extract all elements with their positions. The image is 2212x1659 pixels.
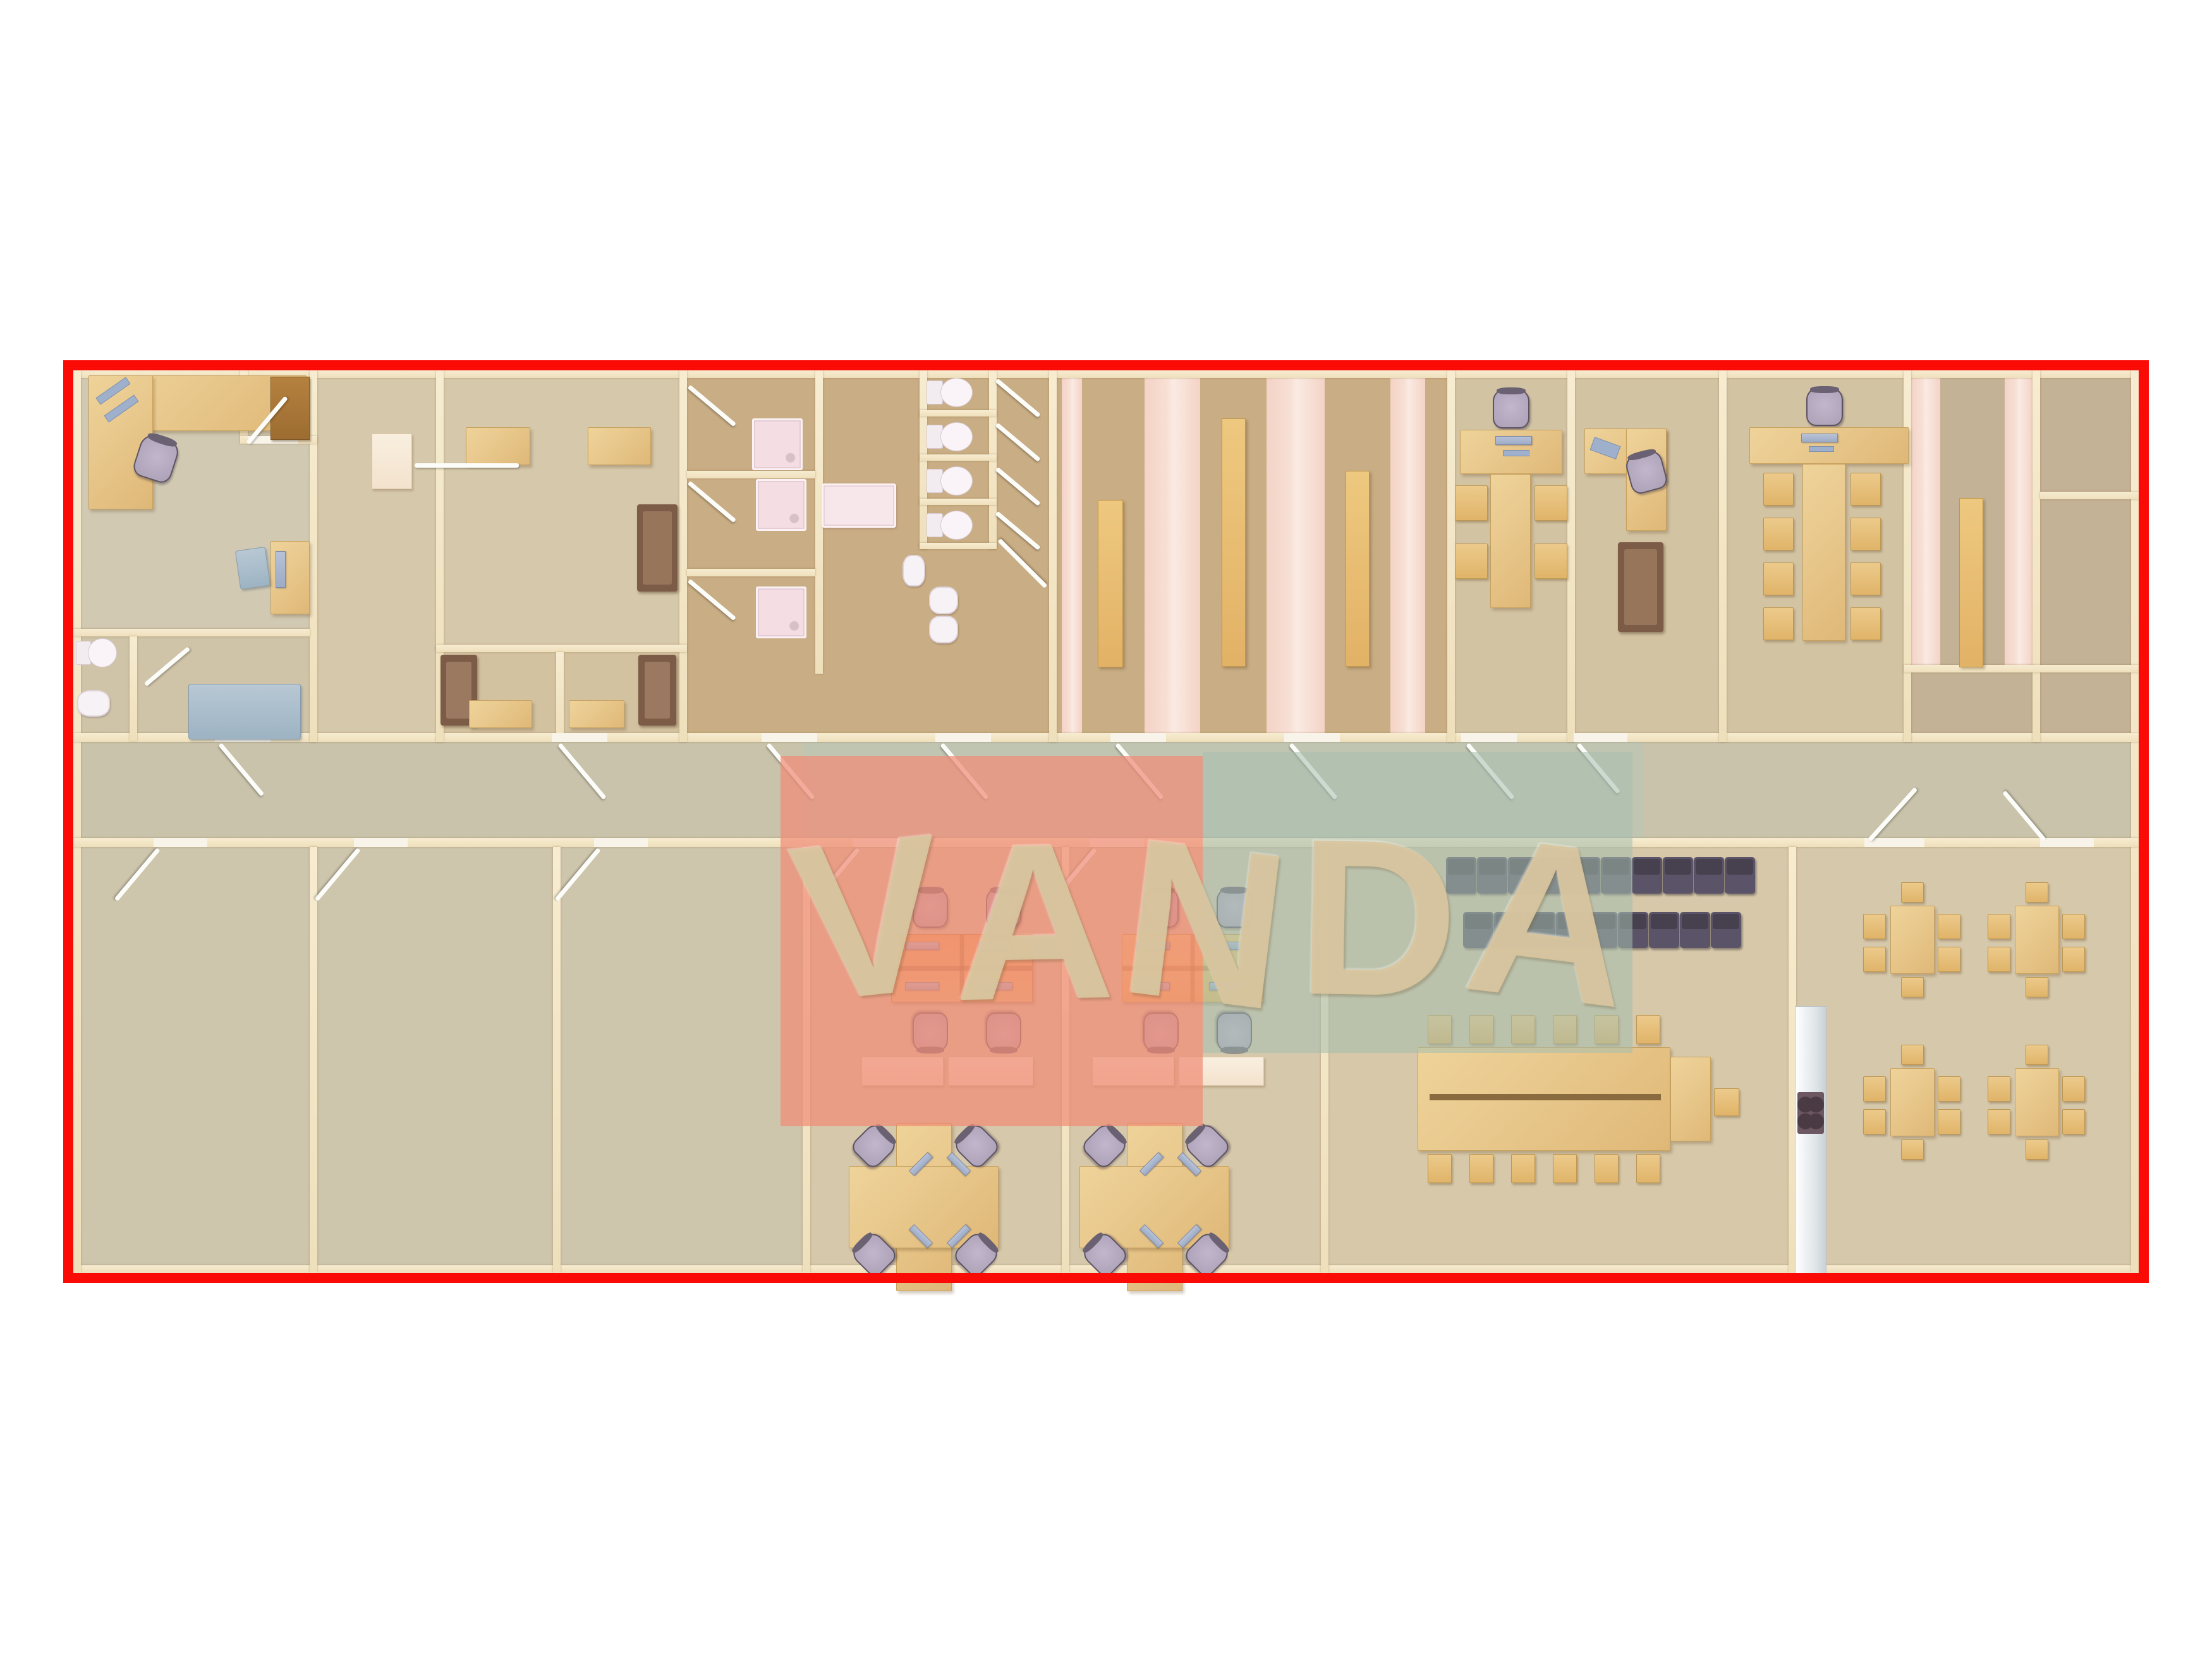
wall <box>1904 665 2139 672</box>
shower-tray <box>756 586 806 638</box>
open <box>594 838 648 847</box>
locker-bench <box>1222 418 1246 667</box>
sofa <box>1618 542 1663 632</box>
standing-desk <box>372 434 412 489</box>
dining-chair <box>1988 1109 2010 1134</box>
dining-chair <box>2062 947 2085 972</box>
dining-chair <box>1863 947 1886 972</box>
conference-chair <box>1553 1154 1577 1183</box>
monitor <box>1801 434 1838 442</box>
meeting-chair <box>1850 518 1881 550</box>
meeting-chair <box>1763 607 1794 640</box>
meeting-table-blue <box>188 684 301 739</box>
wall <box>2040 492 2139 499</box>
dining-chair <box>1988 1076 2010 1102</box>
wall <box>2033 370 2040 742</box>
dining-chair <box>2062 1109 2085 1134</box>
open <box>1110 733 1166 742</box>
wall <box>2131 370 2139 1273</box>
watermark-letter: N <box>1112 807 1301 1040</box>
sofa <box>637 504 678 592</box>
watermark-letter: A <box>952 813 1119 1030</box>
wall <box>73 370 2139 378</box>
wall <box>920 410 997 416</box>
office-chair <box>1493 389 1529 428</box>
dining-chair <box>1901 977 1924 997</box>
dining-table <box>1890 906 1935 974</box>
open <box>935 733 991 742</box>
meeting-desk <box>1749 427 1909 464</box>
dining-table <box>2015 906 2059 974</box>
dining-chair <box>1988 947 2010 972</box>
dining-chair <box>1938 914 1960 939</box>
meeting-chair <box>1850 562 1881 595</box>
side-chair <box>235 547 270 590</box>
sink <box>77 690 110 717</box>
dining-chair <box>2026 882 2048 902</box>
conference-chair <box>1511 1154 1535 1183</box>
wall <box>556 652 564 741</box>
dining-chair <box>1938 1076 1960 1102</box>
kb <box>1503 450 1529 456</box>
wall <box>687 471 815 478</box>
toilet <box>927 378 972 406</box>
stripe <box>1267 370 1325 733</box>
waiting-sofa <box>1663 857 1693 894</box>
shower-tray <box>752 418 803 470</box>
wall <box>679 370 687 742</box>
t-desk <box>1490 474 1531 608</box>
table <box>466 427 530 465</box>
wall <box>1904 370 1911 742</box>
conference-chair <box>1714 1088 1739 1116</box>
waiting-sofa <box>1680 912 1710 948</box>
watermark-letter: D <box>1296 809 1462 1026</box>
stripe <box>1062 370 1082 733</box>
wall <box>130 636 137 741</box>
conference-table <box>1670 1057 1711 1141</box>
dining-chair <box>1901 1139 1924 1160</box>
watermark-letter: A <box>1457 805 1645 1038</box>
conference-chair <box>1595 1154 1619 1183</box>
toilet <box>76 638 116 666</box>
locker-bench <box>1346 471 1370 667</box>
wall <box>1567 370 1575 742</box>
wall <box>73 370 81 1273</box>
dining-chair <box>1901 882 1924 902</box>
wall <box>1719 370 1727 742</box>
meeting-chair <box>1763 518 1794 550</box>
monitor <box>276 551 286 588</box>
watermark-letter: V <box>783 803 956 1032</box>
conference-chair <box>1636 1015 1660 1044</box>
dining-chair <box>1938 947 1960 972</box>
wall-sink <box>902 555 925 586</box>
cooktop <box>1797 1092 1824 1134</box>
dining-table <box>1890 1068 1935 1136</box>
sink <box>929 616 958 643</box>
dining-chair <box>2026 1139 2048 1160</box>
wall <box>920 499 997 505</box>
waiting-sofa <box>1649 912 1679 948</box>
dining-chair <box>2026 977 2048 997</box>
stripe <box>2005 370 2033 665</box>
monitor <box>1495 436 1532 445</box>
wall <box>1049 370 1057 742</box>
floor-bottom-left <box>73 847 803 1273</box>
sink <box>929 586 958 614</box>
conference-chair <box>1636 1154 1660 1183</box>
office-chair <box>1806 388 1843 426</box>
locker-bench <box>1959 498 1983 667</box>
stripe <box>1145 370 1200 733</box>
dining-chair <box>2062 1076 2085 1102</box>
wall <box>73 733 2139 742</box>
open <box>1574 733 1627 742</box>
meeting-chair <box>1850 473 1881 506</box>
open <box>1461 733 1517 742</box>
dining-chair <box>1863 1076 1886 1102</box>
dining-table <box>2015 1068 2059 1136</box>
waiting-sofa <box>1711 912 1741 948</box>
wall <box>920 543 997 549</box>
stripe <box>1390 370 1425 733</box>
wall <box>553 847 561 1273</box>
dining-chair <box>1938 1109 1960 1134</box>
meeting-chair <box>1763 473 1794 506</box>
meeting-desk <box>1802 464 1845 641</box>
toilet <box>927 466 972 494</box>
meeting-chair <box>1763 562 1794 595</box>
guest-chair <box>1455 485 1488 521</box>
wall <box>687 569 815 576</box>
wall <box>73 629 310 636</box>
table <box>469 700 532 728</box>
dining-chair <box>1863 1109 1886 1134</box>
waiting-sofa <box>1725 857 1755 894</box>
wall <box>310 847 317 1273</box>
table <box>588 427 651 465</box>
table <box>569 700 624 728</box>
floor-plan-canvas: VANDA <box>0 0 2212 1659</box>
open <box>762 733 817 742</box>
toilet <box>927 511 972 538</box>
cable-slot <box>1430 1094 1661 1100</box>
open <box>354 838 408 847</box>
conference-chair <box>1469 1154 1493 1183</box>
wall <box>436 645 687 652</box>
door-swing <box>415 463 519 468</box>
wall <box>920 454 997 461</box>
dining-chair <box>1901 1045 1924 1065</box>
wall <box>1447 370 1455 742</box>
open <box>1284 733 1340 742</box>
armchair <box>638 655 676 726</box>
open <box>2040 838 2094 847</box>
guest-chair <box>1534 485 1567 521</box>
dining-chair <box>2062 914 2085 939</box>
dining-chair <box>1988 914 2010 939</box>
dining-chair <box>1863 914 1886 939</box>
wall <box>310 370 317 742</box>
shower-tray <box>756 479 806 531</box>
open <box>154 838 207 847</box>
waiting-sofa <box>1694 857 1724 894</box>
bathtub <box>822 483 896 528</box>
meeting-chair <box>1850 607 1881 640</box>
dining-chair <box>2026 1045 2048 1065</box>
conference-chair <box>1428 1154 1452 1183</box>
toilet <box>927 422 972 450</box>
stripe <box>1910 370 1940 665</box>
open <box>552 733 607 742</box>
open <box>1864 838 1924 847</box>
guest-chair <box>1455 544 1488 579</box>
locker-bench <box>1098 500 1123 667</box>
kb <box>1809 446 1834 452</box>
vanda-watermark: VANDA <box>815 810 1612 1050</box>
kitchen-counter <box>1795 1006 1826 1274</box>
guest-chair <box>1534 544 1567 579</box>
